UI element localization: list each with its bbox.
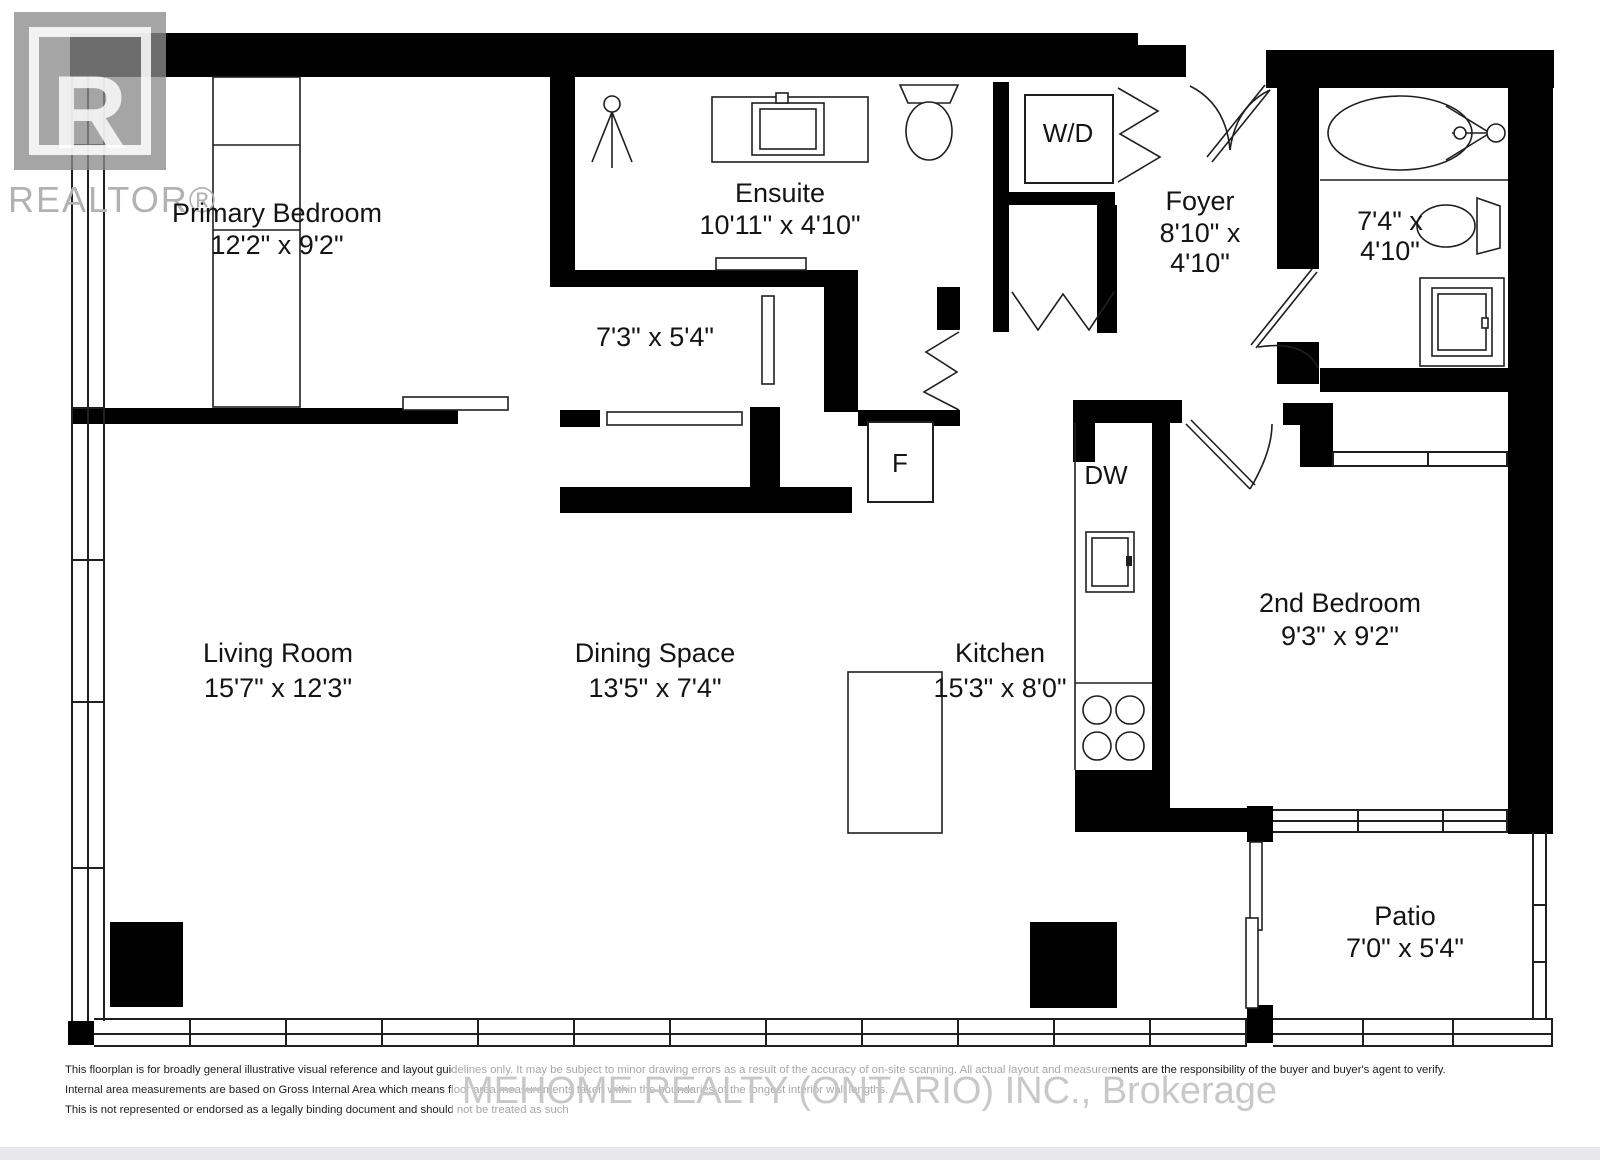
column-corner [68,1021,94,1045]
wall-closet-right [750,407,780,493]
floorplan-page: R REALTOR® Primary Bedroom 12'2" x 9'2" … [0,0,1600,1160]
window-2nd-bedroom [1333,452,1508,466]
wall-hall-post [937,287,960,330]
shower-icon [592,96,632,168]
label-ensuite: Ensuite [735,178,825,208]
column-living-right [1030,922,1117,1008]
column-living-left [110,922,183,1007]
stove-icon [1083,696,1144,760]
patio-slider-panel-2 [1246,918,1258,1008]
window-wall-bottom [94,1019,1247,1046]
ensuite-shelf [716,258,806,270]
wall-2ndbed-corner-v [1300,403,1333,467]
second-bedroom-door-leaf [1186,420,1255,489]
wall-closet-mid [824,270,858,412]
closet-shelf [607,412,742,425]
wall-ensuite-bottom [550,270,858,287]
bathroom-door-leaf [1251,269,1317,348]
label-dishwasher: DW [1084,460,1128,490]
bedroom-door-ledge [403,397,508,410]
wall-shower-left [550,77,575,287]
wall-kitchen-top-stub [1073,400,1095,462]
ensuite-vanity-sink-icon [712,93,868,162]
window-wall-patio-bottom [1273,1019,1553,1046]
label-living-room: Living Room [203,638,353,668]
wall-bed-door-stub [560,410,600,427]
wall-bath-left-lower [1277,342,1319,384]
entry-door-arc-left [1190,86,1230,150]
wall-bedroom-living-divider [72,408,458,424]
wall-patio-block-bottom [1247,1005,1273,1043]
label-living-room-dims: 15'7" x 12'3" [204,673,352,703]
wall-bath-bottom [1320,368,1508,392]
dishwasher-icon [1086,532,1134,592]
floorplan-svg: R REALTOR® Primary Bedroom 12'2" x 9'2" … [0,0,1600,1160]
bathroom-vanity-icon [1420,278,1504,366]
wall-wd-divider [1003,192,1115,205]
label-foyer: Foyer [1165,186,1234,216]
window-wall-patio-right [1533,832,1546,1019]
wall-wd-left [993,82,1009,332]
wall-top-step [1138,45,1186,77]
label-dining-space-dims: 13'5" x 7'4" [588,673,721,703]
realtor-logo-letter: R [52,55,127,171]
label-fridge: F [892,448,908,478]
ensuite-pocket-door [762,296,774,384]
label-kitchen-dims: 15'3" x 8'0" [933,673,1066,703]
label-bathroom-dims2: 4'10" [1360,236,1420,266]
label-foyer-dims2: 4'10" [1170,248,1230,278]
label-primary-bedroom-dims: 12'2" x 9'2" [210,230,343,260]
label-bathroom-dims1: 7'4" x [1357,206,1423,236]
wall-kitchen-right [1152,422,1170,808]
footer-strip [0,1147,1600,1160]
label-primary-bedroom: Primary Bedroom [172,198,382,228]
second-bedroom-door-arc [1250,424,1272,489]
label-kitchen: Kitchen [955,638,1045,668]
brokerage-watermark-text: MEHOME REALTY (ONTARIO) INC., Brokerage [462,1070,1277,1112]
hall-closet-bifold [924,332,959,410]
wall-counter-bottom [1075,770,1170,832]
label-second-bedroom-dims: 9'3" x 9'2" [1281,621,1399,651]
wd-closet-bifold [1118,88,1160,182]
wall-right-outer [1508,50,1553,834]
patio-slider-panel-1 [1250,842,1262,930]
label-patio-dims: 7'0" x 5'4" [1346,933,1464,963]
window-wall-patio-top [1273,810,1508,832]
bathroom-toilet-icon [1417,198,1500,254]
bathtub-icon [1328,96,1505,170]
wall-top-main [70,33,1138,77]
wall-closet-bottom [560,487,852,513]
label-closet-dims: 7'3" x 5'4" [596,322,714,352]
label-second-bedroom: 2nd Bedroom [1259,588,1421,618]
wall-patio-block-top [1247,806,1273,842]
kitchen-island [848,672,942,833]
label-foyer-dims1: 8'10" x [1160,218,1241,248]
wall-bath-left-upper [1277,77,1319,269]
entry-door-leaf [1207,85,1270,162]
label-patio: Patio [1374,901,1436,931]
label-washer-dryer: W/D [1043,118,1094,148]
label-dining-space: Dining Space [575,638,736,668]
ensuite-toilet-icon [900,85,958,160]
label-ensuite-dims: 10'11" x 4'10" [699,210,860,240]
